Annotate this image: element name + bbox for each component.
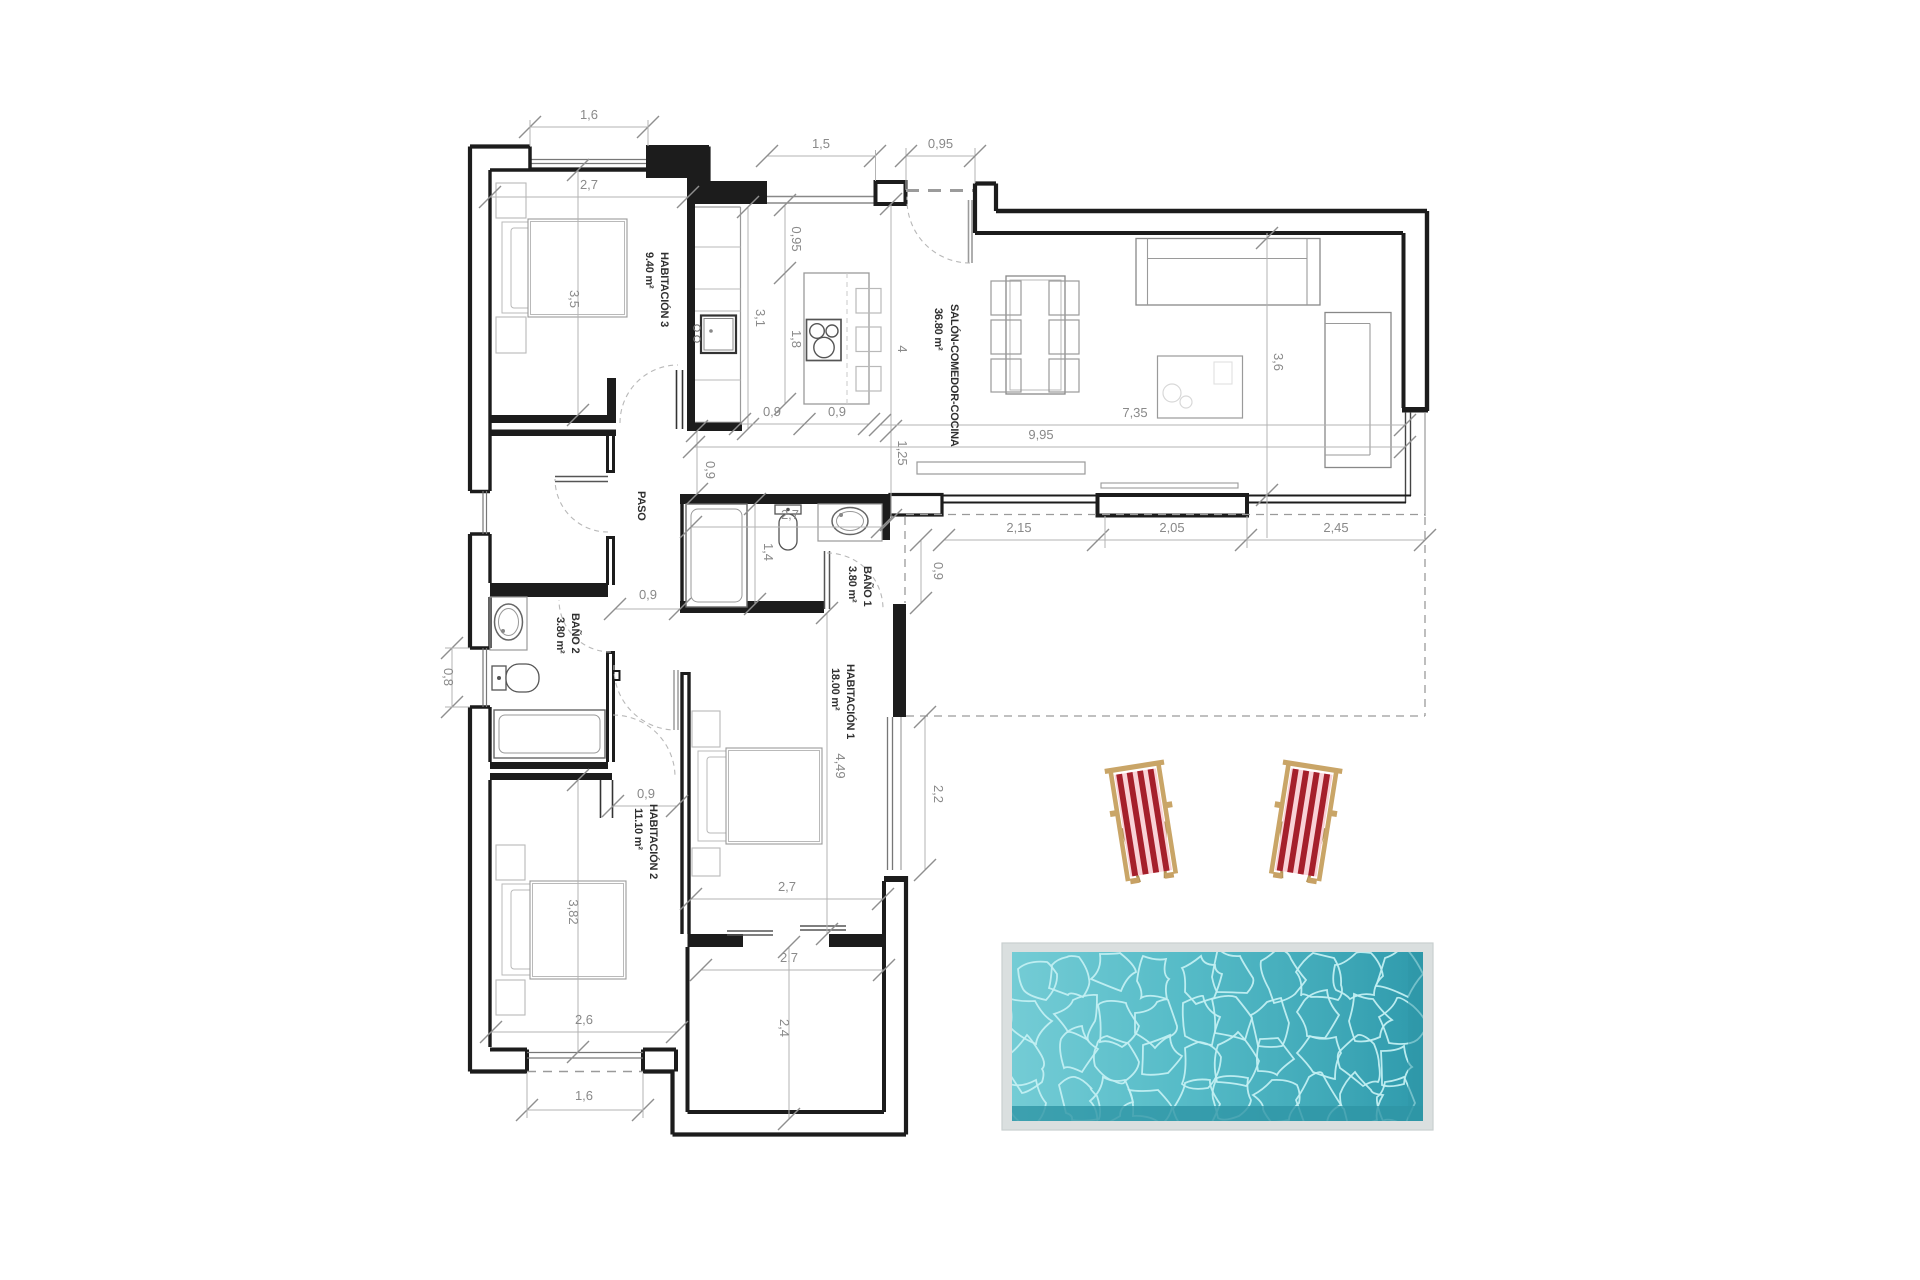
svg-text:2,6: 2,6 bbox=[575, 1012, 593, 1027]
svg-text:0,95: 0,95 bbox=[928, 136, 953, 151]
svg-text:BAÑO 2: BAÑO 2 bbox=[569, 613, 582, 653]
svg-text:3,5: 3,5 bbox=[567, 290, 582, 308]
svg-text:11.10 m²: 11.10 m² bbox=[632, 808, 644, 850]
svg-text:2,7: 2,7 bbox=[781, 507, 799, 522]
svg-text:0,9: 0,9 bbox=[931, 562, 946, 580]
svg-text:9.40 m²: 9.40 m² bbox=[643, 252, 655, 289]
svg-text:9,95: 9,95 bbox=[1028, 427, 1053, 442]
svg-text:1,4: 1,4 bbox=[761, 543, 776, 561]
svg-text:4: 4 bbox=[895, 345, 910, 352]
svg-text:1,25: 1,25 bbox=[895, 440, 910, 465]
svg-text:HABITACIÓN 2: HABITACIÓN 2 bbox=[647, 804, 660, 879]
svg-text:2,45: 2,45 bbox=[1323, 520, 1348, 535]
svg-text:0,9: 0,9 bbox=[763, 404, 781, 419]
svg-text:3,1: 3,1 bbox=[753, 309, 768, 327]
svg-text:0,9: 0,9 bbox=[637, 786, 655, 801]
svg-text:1,5: 1,5 bbox=[812, 136, 830, 151]
svg-text:2,7: 2,7 bbox=[580, 177, 598, 192]
svg-text:36.80 m²: 36.80 m² bbox=[932, 308, 944, 351]
svg-text:2,2: 2,2 bbox=[931, 785, 946, 803]
svg-text:HABITACIÓN 1: HABITACIÓN 1 bbox=[844, 664, 857, 739]
svg-text:2,4: 2,4 bbox=[777, 1019, 792, 1037]
svg-text:18.00 m²: 18.00 m² bbox=[829, 668, 841, 711]
svg-text:1,6: 1,6 bbox=[580, 107, 598, 122]
svg-text:2,05: 2,05 bbox=[1159, 520, 1184, 535]
svg-text:HABITACIÓN 3: HABITACIÓN 3 bbox=[658, 252, 671, 327]
svg-text:3,82: 3,82 bbox=[566, 899, 581, 924]
svg-text:3.80 m²: 3.80 m² bbox=[846, 566, 858, 603]
svg-text:SALÓN-COMEDOR-COCINA: SALÓN-COMEDOR-COCINA bbox=[948, 304, 961, 447]
svg-text:0,9: 0,9 bbox=[639, 587, 657, 602]
svg-text:0,9: 0,9 bbox=[703, 461, 718, 479]
svg-text:2,15: 2,15 bbox=[1006, 520, 1031, 535]
svg-text:0,8: 0,8 bbox=[441, 668, 456, 686]
svg-text:PASO: PASO bbox=[635, 491, 647, 521]
svg-text:3.80 m²: 3.80 m² bbox=[554, 617, 566, 654]
svg-text:1,8: 1,8 bbox=[789, 330, 804, 348]
svg-text:0,95: 0,95 bbox=[789, 226, 804, 251]
svg-text:4,49: 4,49 bbox=[833, 753, 848, 778]
svg-text:BAÑO 1: BAÑO 1 bbox=[861, 566, 874, 606]
svg-text:7,35: 7,35 bbox=[1122, 405, 1147, 420]
svg-text:0,9: 0,9 bbox=[828, 404, 846, 419]
svg-text:1,6: 1,6 bbox=[575, 1088, 593, 1103]
svg-text:3,6: 3,6 bbox=[1271, 353, 1286, 371]
svg-text:2,7: 2,7 bbox=[778, 879, 796, 894]
